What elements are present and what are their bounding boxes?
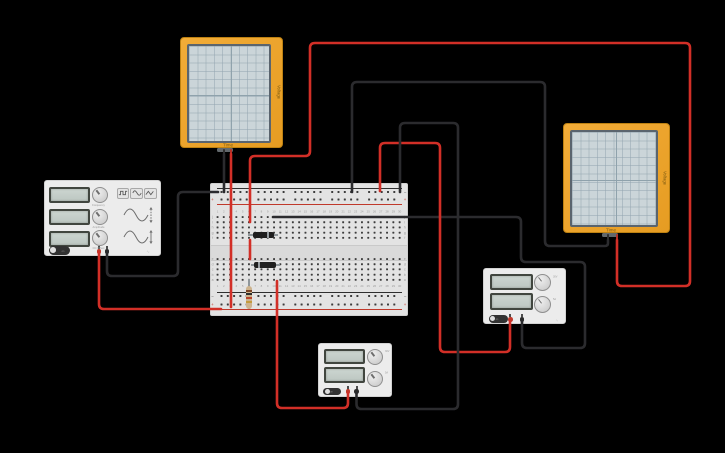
triangle-wave-icon (145, 189, 155, 197)
fg-display-offset (49, 231, 90, 248)
osc-left-center-hline (189, 95, 269, 96)
fg-sine-wave-button[interactable] (130, 188, 143, 199)
psu-right-voltage-display (490, 274, 534, 291)
osc-left-center-vline (231, 46, 232, 141)
square-wave-icon (118, 189, 128, 197)
wire-fg-red-to-bottom-plus-rail[interactable] (99, 252, 221, 309)
fg-amplitude-knob[interactable] (92, 209, 108, 225)
osc-right-center-hline (572, 180, 656, 181)
psu-bottom-voltage-display (324, 349, 365, 365)
bottom-plus-rail-stripe (217, 309, 402, 310)
psu-bottom-power-toggle[interactable] (323, 388, 341, 396)
fg-offset-knob[interactable] (92, 230, 108, 246)
fg-power-toggle[interactable] (49, 246, 70, 255)
fg-offset-graphic (122, 227, 154, 247)
resistor-band-4 (246, 301, 253, 303)
diode-2[interactable] (254, 262, 276, 268)
psu-right-current-knob[interactable] (534, 296, 551, 313)
oscilloscope-left[interactable] (180, 37, 283, 148)
psu-bottom-current-display (324, 367, 365, 383)
diode-1[interactable] (253, 232, 274, 238)
fg-amplitude-graphic (122, 205, 154, 225)
fg-triangle-wave-button[interactable] (144, 188, 157, 199)
oscilloscope-left-screen (187, 44, 271, 143)
function-generator[interactable] (44, 180, 161, 256)
fg-display-frequency (49, 187, 90, 204)
osc-right-center-vline (616, 132, 617, 225)
oscilloscope-right-screen (570, 130, 658, 227)
psu-right-power-toggle[interactable] (489, 315, 508, 323)
circuit-canvas: 1122334455667788991010111112121313141415… (0, 0, 725, 453)
power-supply-right[interactable] (483, 268, 566, 324)
resistor-1[interactable] (246, 286, 253, 309)
oscilloscope-right[interactable] (563, 123, 670, 233)
sine-wave-icon (132, 189, 142, 197)
psu-bottom-current-knob[interactable] (367, 371, 383, 387)
resistor-band-3 (246, 297, 253, 299)
fg-square-wave-button[interactable] (117, 188, 130, 199)
psu-bottom-voltage-knob[interactable] (367, 349, 383, 365)
top-plus-rail-stripe (217, 204, 402, 205)
diode-1-cathode-band (267, 232, 269, 238)
diode-2-cathode-band (258, 262, 260, 268)
resistor-band-1 (246, 290, 253, 292)
top-minus-rail-stripe (217, 188, 402, 189)
psu-right-current-display (490, 293, 534, 310)
psu-right-voltage-knob[interactable] (534, 274, 551, 291)
breadboard[interactable] (210, 183, 408, 316)
breadboard-center-channel (211, 245, 407, 261)
resistor-band-2 (246, 293, 253, 295)
fg-display-amplitude (49, 209, 90, 226)
fg-frequency-knob[interactable] (92, 187, 108, 203)
